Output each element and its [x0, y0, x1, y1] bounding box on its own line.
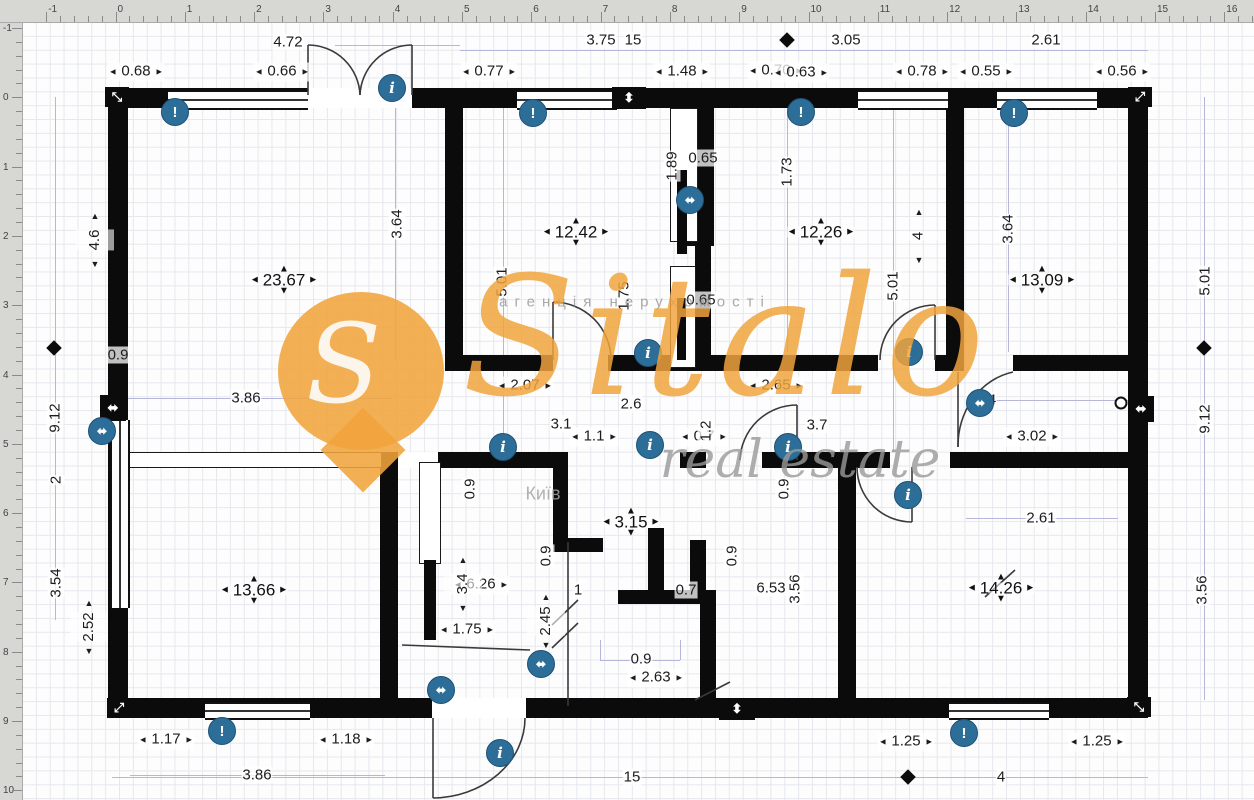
dimension-label-vertical: 5.01 — [494, 266, 511, 297]
dimension-label-vertical: 0.9 — [462, 478, 479, 501]
dimension-label-vertical: 1.2 — [698, 420, 715, 443]
dimension-label-vertical: 9.12 — [1197, 403, 1214, 434]
ruler-label: 7 — [603, 4, 609, 15]
dimension-label: 3.86 — [230, 390, 261, 407]
ruler-tick — [254, 12, 255, 22]
light-partition-wall — [419, 462, 441, 564]
ruler-minor-tick — [296, 16, 297, 22]
dimension-label-vertical: ▲4.6▼ — [85, 211, 106, 269]
wall-segment — [1013, 355, 1128, 371]
ruler-minor-tick — [16, 541, 22, 542]
ruler-minor-tick — [725, 16, 726, 22]
wall-segment — [553, 452, 568, 540]
ruler-minor-tick — [16, 624, 22, 625]
ruler-tick — [46, 12, 47, 22]
ruler-label: 2 — [256, 4, 262, 15]
ruler-minor-tick — [753, 16, 754, 22]
dimension-label: 2.61 — [1025, 510, 1056, 527]
dimension-helper-line — [1204, 97, 1205, 700]
ruler-minor-tick — [559, 16, 560, 22]
ruler-minor-tick — [1197, 16, 1198, 22]
ruler-minor-tick — [504, 16, 505, 22]
ruler-minor-tick — [171, 16, 172, 22]
dimension-label: ◄ 1.25 ► — [1068, 733, 1125, 752]
ruler-minor-tick — [16, 610, 22, 611]
ruler-minor-tick — [836, 16, 837, 22]
dimension-label: 0.65 — [687, 150, 718, 167]
ruler-tick — [12, 236, 22, 237]
ruler-minor-tick — [16, 430, 22, 431]
ruler-minor-tick — [16, 472, 22, 473]
ruler-minor-tick — [822, 16, 823, 22]
ruler-minor-tick — [517, 16, 518, 22]
dimension-label-vertical: 2 — [48, 475, 65, 485]
ruler-label: 7 — [3, 577, 9, 588]
ruler-minor-tick — [614, 16, 615, 22]
ruler-minor-tick — [16, 111, 22, 112]
measure-icon[interactable]: ⬌ — [527, 650, 555, 678]
ruler-minor-tick — [16, 319, 22, 320]
ruler-tick — [601, 12, 602, 22]
ruler-tick — [12, 444, 22, 445]
dimension-label: 15 — [623, 769, 642, 786]
ruler-label: 0 — [3, 92, 9, 103]
ruler-minor-tick — [16, 70, 22, 71]
ruler-minor-tick — [16, 693, 22, 694]
dimension-label: ◄ 1.17 ► — [137, 731, 194, 750]
ruler-minor-tick — [16, 153, 22, 154]
wall-segment — [950, 452, 1128, 468]
dimension-label: 0.65 — [685, 292, 716, 309]
dimension-label-vertical: ▲2.52▼ — [74, 598, 103, 656]
dimension-label-vertical: 5.01 — [885, 270, 902, 301]
ruler-tick — [947, 12, 948, 22]
ruler-minor-tick — [711, 16, 712, 22]
ruler-minor-tick — [60, 16, 61, 22]
measure-icon[interactable]: ⬌ — [966, 389, 994, 417]
ruler-minor-tick — [1100, 16, 1101, 22]
ruler-tick — [1016, 12, 1017, 22]
window — [168, 90, 308, 110]
ruler-tick — [12, 305, 22, 306]
ruler-minor-tick — [16, 596, 22, 597]
dimension-label: ◄ 3.02 ► — [1003, 428, 1060, 447]
ruler-minor-tick — [102, 16, 103, 22]
ruler-minor-tick — [16, 347, 22, 348]
light-partition-wall — [112, 452, 382, 468]
dimension-helper-line — [335, 45, 460, 46]
ruler-minor-tick — [16, 333, 22, 334]
ruler-label: -1 — [48, 4, 57, 15]
ruler-minor-tick — [16, 56, 22, 57]
warning-icon[interactable]: ! — [1000, 99, 1028, 127]
ruler-minor-tick — [88, 16, 89, 22]
corner-resize-icon: ⤢ — [1128, 87, 1152, 107]
dimension-helper-line — [55, 97, 56, 620]
wall-segment — [838, 467, 856, 698]
ruler-label: 9 — [741, 4, 747, 15]
dimension-label-vertical: 5.01 — [1197, 265, 1214, 296]
dimension-label: ◄ 2.07 ► — [496, 377, 553, 396]
ruler-tick — [1224, 12, 1225, 22]
ruler-minor-tick — [16, 749, 22, 750]
dimension-label: ◄ 0.55 ► — [957, 63, 1014, 82]
info-icon[interactable]: i — [894, 481, 922, 509]
dimension-label-vertical: 0.9 — [538, 545, 555, 568]
ruler-minor-tick — [199, 16, 200, 22]
dimension-label: ◄ 0.77 ► — [460, 63, 517, 82]
ruler-minor-tick — [989, 16, 990, 22]
ruler-minor-tick — [268, 16, 269, 22]
ruler-tick — [116, 12, 117, 22]
door-pivot-point — [1115, 397, 1128, 410]
ruler-label: 14 — [1088, 4, 1099, 15]
dimension-label: 2.6 — [620, 396, 643, 413]
dimension-label: 2.61 — [1030, 32, 1061, 49]
ruler-minor-tick — [16, 707, 22, 708]
dimension-label: ◄ 0.68 ► — [107, 63, 164, 82]
dimension-label: ◄ 1.25 ► — [877, 733, 934, 752]
measure-icon[interactable]: ⬌ — [676, 186, 704, 214]
ruler-minor-tick — [16, 83, 22, 84]
warning-icon[interactable]: ! — [208, 717, 236, 745]
ruler-tick — [12, 582, 22, 583]
room-area-label: ▲◄12.42►▼ — [542, 216, 610, 249]
ruler-minor-tick — [351, 16, 352, 22]
ruler-label: 2 — [3, 231, 9, 242]
dimension-label: ◄ 0.63 ► — [772, 64, 829, 83]
ruler-minor-tick — [16, 569, 22, 570]
ruler-minor-tick — [143, 16, 144, 22]
wall-segment — [935, 355, 964, 371]
dimension-label: 0.9 — [107, 347, 130, 364]
ruler-tick — [878, 12, 879, 22]
info-icon[interactable]: i — [774, 433, 802, 461]
dimension-label: 3.7 — [806, 417, 829, 434]
ruler-minor-tick — [16, 277, 22, 278]
ruler-label: 11 — [880, 4, 890, 15]
info-icon[interactable]: i — [486, 739, 514, 767]
wall-segment — [553, 538, 603, 552]
dimension-label: ◄ 0.56 ► — [1093, 63, 1150, 82]
ruler-label: -1 — [3, 23, 12, 34]
dimension-label: 3.75 — [585, 32, 616, 49]
wall-segment — [698, 108, 714, 238]
room-area-label: ▲◄14.26►▼ — [967, 572, 1035, 605]
ruler-label: 6 — [3, 508, 9, 519]
ruler-minor-tick — [129, 16, 130, 22]
dimension-label: ◄ 1.1 ► — [569, 428, 618, 447]
room-area-label: ▲◄3.15►▼ — [602, 506, 661, 539]
ruler-minor-tick — [698, 16, 699, 22]
corner-resize-icon: ⤡ — [1127, 697, 1151, 717]
ruler-minor-tick — [16, 194, 22, 195]
dimension-label-vertical: ▲4▼ — [915, 207, 924, 265]
ruler-tick — [809, 12, 810, 22]
ruler-minor-tick — [16, 555, 22, 556]
ruler-minor-tick — [1238, 16, 1239, 22]
wall-segment — [445, 355, 553, 371]
ruler-label: 15 — [1157, 4, 1168, 15]
diamond-marker — [1196, 340, 1212, 356]
ruler-minor-tick — [476, 16, 477, 22]
window — [949, 702, 1049, 720]
ruler-minor-tick — [906, 16, 907, 22]
dimension-label: ◄ 2.65 ► — [747, 377, 804, 396]
ruler-minor-tick — [795, 16, 796, 22]
ruler-tick — [12, 97, 22, 98]
ruler-minor-tick — [16, 527, 22, 528]
ruler-minor-tick — [16, 264, 22, 265]
ruler-tick — [739, 12, 740, 22]
warning-icon[interactable]: ! — [519, 99, 547, 127]
ruler-tick — [12, 790, 22, 791]
dimension-label-vertical: 0.9 — [776, 478, 793, 501]
ruler-minor-tick — [16, 388, 22, 389]
ruler-label: 16 — [1226, 4, 1237, 15]
dimension-helper-line — [980, 400, 1128, 401]
ruler-minor-tick — [16, 125, 22, 126]
dimension-helper-line — [600, 640, 601, 660]
info-icon[interactable]: i — [634, 339, 662, 367]
ruler-tick — [393, 12, 394, 22]
ruler-tick — [12, 375, 22, 376]
dimension-label: ◄ 2.63 ► — [627, 669, 684, 688]
ruler-tick — [1155, 12, 1156, 22]
ruler-minor-tick — [16, 666, 22, 667]
ruler-minor-tick — [1003, 16, 1004, 22]
info-icon[interactable]: i — [378, 74, 406, 102]
dimension-label: 4.72 — [272, 34, 303, 51]
corner-resize-icon: ⤢ — [107, 698, 131, 718]
wall-fitting-icon: ⬌ — [1128, 396, 1154, 422]
measure-icon[interactable]: ⬌ — [427, 676, 455, 704]
ruler-minor-tick — [1030, 16, 1031, 22]
ruler-minor-tick — [407, 16, 408, 22]
corner-resize-icon: ⤡ — [105, 87, 129, 107]
ruler-minor-tick — [1252, 16, 1253, 22]
diamond-marker — [46, 340, 62, 356]
ruler-label: 8 — [672, 4, 678, 15]
ruler-minor-tick — [1113, 16, 1114, 22]
ruler-minor-tick — [490, 16, 491, 22]
ruler-label: 1 — [3, 162, 9, 173]
ruler-label: 6 — [533, 4, 539, 15]
ruler-minor-tick — [1044, 16, 1045, 22]
dimension-label: 0.7 — [675, 582, 698, 599]
ruler-minor-tick — [587, 16, 588, 22]
dimension-label: 6.53 — [755, 580, 786, 597]
dimension-label-vertical: 3.54 — [48, 567, 65, 598]
ruler-minor-tick — [850, 16, 851, 22]
ruler-minor-tick — [213, 16, 214, 22]
ruler-minor-tick — [226, 16, 227, 22]
warning-icon[interactable]: ! — [161, 98, 189, 126]
dimension-label: 1 — [573, 582, 583, 599]
ruler-tick — [12, 167, 22, 168]
dimension-label-vertical: 0.9 — [724, 545, 741, 568]
ruler-minor-tick — [434, 16, 435, 22]
room-area-label: ▲◄13.66►▼ — [220, 574, 288, 607]
ruler-label: 12 — [949, 4, 960, 15]
ruler-tick — [462, 12, 463, 22]
ruler-tick — [12, 28, 22, 29]
wall-segment — [680, 452, 706, 468]
ruler-label: 3 — [3, 300, 9, 311]
ruler-minor-tick — [1127, 16, 1128, 22]
dimension-label: 4 — [996, 769, 1006, 786]
dimension-label: ◄ 0.78 ► — [893, 63, 950, 82]
dimension-label: 3.1 — [550, 416, 573, 433]
ruler-label: 9 — [3, 716, 9, 727]
dimension-label-vertical: 1.75 — [616, 280, 633, 311]
ruler-minor-tick — [16, 679, 22, 680]
measure-icon[interactable]: ⬌ — [88, 417, 116, 445]
ruler-minor-tick — [656, 16, 657, 22]
ruler-minor-tick — [420, 16, 421, 22]
diamond-marker — [900, 769, 916, 785]
ruler-label: 1 — [187, 4, 193, 15]
ruler-minor-tick — [16, 776, 22, 777]
ruler-tick — [12, 721, 22, 722]
ruler-minor-tick — [337, 16, 338, 22]
ruler-minor-tick — [642, 16, 643, 22]
ruler-minor-tick — [16, 139, 22, 140]
info-icon[interactable]: i — [636, 431, 664, 459]
ruler-minor-tick — [1141, 16, 1142, 22]
ruler-minor-tick — [1058, 16, 1059, 22]
ruler-minor-tick — [684, 16, 685, 22]
info-icon[interactable]: i — [489, 433, 517, 461]
floorplan-viewer: -1012345678910111213141516 -101234567891… — [0, 0, 1254, 800]
ruler-minor-tick — [240, 16, 241, 22]
dimension-label-vertical: 1.73 — [779, 156, 796, 187]
ruler-left: -1012345678910 — [0, 0, 23, 800]
ruler-minor-tick — [16, 250, 22, 251]
dimension-label-vertical: ▲3.4▼ — [453, 555, 474, 613]
ruler-minor-tick — [16, 208, 22, 209]
window — [110, 420, 130, 608]
ruler-minor-tick — [16, 416, 22, 417]
wall-segment — [445, 108, 463, 360]
ruler-tick — [531, 12, 532, 22]
dimension-label: ◄ 0.66 ► — [253, 63, 310, 82]
ruler-minor-tick — [767, 16, 768, 22]
ruler-minor-tick — [16, 485, 22, 486]
ruler-minor-tick — [1072, 16, 1073, 22]
wall-fitting-icon: ⬍ — [719, 698, 755, 720]
ruler-label: 3 — [325, 4, 331, 15]
dimension-helper-line — [460, 50, 1148, 51]
ruler-tick — [1086, 12, 1087, 22]
ruler-minor-tick — [16, 763, 22, 764]
wall-segment — [700, 590, 716, 698]
dimension-label: 3.86 — [241, 767, 272, 784]
ruler-minor-tick — [379, 16, 380, 22]
diamond-marker — [779, 32, 795, 48]
ruler-tick — [323, 12, 324, 22]
dimension-label: 3.05 — [830, 32, 861, 49]
ruler-minor-tick — [16, 458, 22, 459]
ruler-minor-tick — [573, 16, 574, 22]
info-icon[interactable]: i — [895, 338, 923, 366]
dimension-label: 0.9 — [630, 651, 653, 668]
ruler-label: 4 — [3, 370, 9, 381]
ruler-minor-tick — [1210, 16, 1211, 22]
room-area-label: ▲◄23.67►▼ — [250, 264, 318, 297]
ruler-label: 4 — [395, 4, 401, 15]
ruler-label: 0 — [118, 4, 124, 15]
ruler-minor-tick — [628, 16, 629, 22]
ruler-minor-tick — [933, 16, 934, 22]
ruler-minor-tick — [16, 735, 22, 736]
dimension-label: 15 — [624, 32, 643, 49]
ruler-minor-tick — [16, 361, 22, 362]
dimension-label-vertical: 3.56 — [787, 573, 804, 604]
ruler-minor-tick — [919, 16, 920, 22]
ruler-label: 5 — [464, 4, 470, 15]
dimension-label: ◄ 1.48 ► — [653, 63, 710, 82]
ruler-minor-tick — [16, 222, 22, 223]
warning-icon[interactable]: ! — [950, 719, 978, 747]
ruler-minor-tick — [975, 16, 976, 22]
ruler-tick — [12, 652, 22, 653]
ruler-minor-tick — [16, 402, 22, 403]
wall-segment — [380, 452, 398, 698]
ruler-label: 5 — [3, 439, 9, 450]
dimension-label-vertical: ▲2.45▼ — [531, 592, 560, 650]
ruler-minor-tick — [74, 16, 75, 22]
dimension-label-vertical: 3.64 — [1000, 213, 1017, 244]
duct-bar — [424, 560, 436, 640]
dimension-label-vertical: 1.89 — [664, 150, 681, 181]
dimension-label-vertical: 3.64 — [389, 208, 406, 239]
ruler-minor-tick — [1183, 16, 1184, 22]
ruler-label: 8 — [3, 647, 9, 658]
ruler-tick — [670, 12, 671, 22]
dimension-label: ◄ 1.18 ► — [317, 731, 374, 750]
wall-fitting-icon: ⬍ — [612, 87, 646, 109]
dimension-label-vertical: 3.56 — [1194, 574, 1211, 605]
ruler-tick — [185, 12, 186, 22]
warning-icon[interactable]: ! — [787, 98, 815, 126]
room-area-label: ▲◄13.09►▼ — [1008, 264, 1076, 297]
ruler-tick — [12, 513, 22, 514]
ruler-minor-tick — [16, 638, 22, 639]
ruler-top: -1012345678910111213141516 — [0, 0, 1254, 23]
ruler-label: 10 — [811, 4, 822, 15]
ruler-minor-tick — [1169, 16, 1170, 22]
ruler-minor-tick — [16, 291, 22, 292]
dimension-label-vertical: 9.12 — [47, 402, 64, 433]
ruler-minor-tick — [961, 16, 962, 22]
ruler-minor-tick — [282, 16, 283, 22]
ruler-minor-tick — [781, 16, 782, 22]
ruler-minor-tick — [365, 16, 366, 22]
room-area-label: ▲◄12.26►▼ — [787, 216, 855, 249]
ruler-minor-tick — [310, 16, 311, 22]
dimension-helper-line — [680, 640, 681, 660]
ruler-label: 13 — [1018, 4, 1029, 15]
ruler-minor-tick — [864, 16, 865, 22]
ruler-minor-tick — [16, 42, 22, 43]
wall-segment — [946, 88, 964, 356]
ruler-minor-tick — [545, 16, 546, 22]
ruler-minor-tick — [448, 16, 449, 22]
window — [858, 90, 948, 110]
ruler-minor-tick — [16, 180, 22, 181]
ruler-minor-tick — [16, 499, 22, 500]
